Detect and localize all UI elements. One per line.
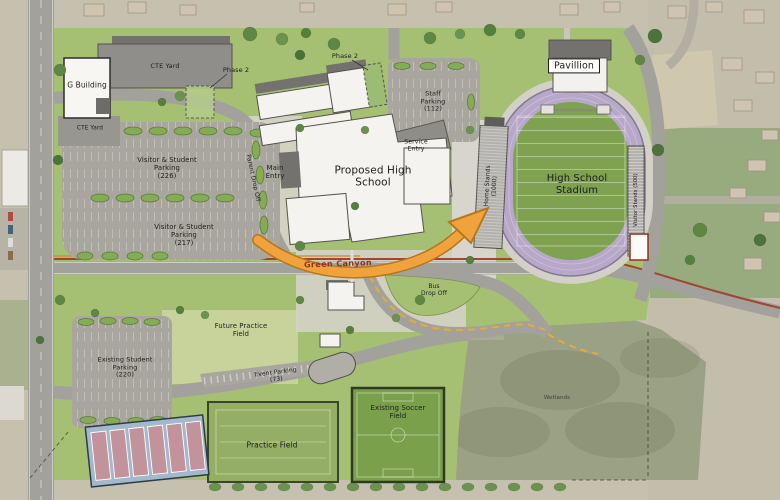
label-visitor-student-parking-south: Visitor & Student Parking (217) <box>154 223 214 247</box>
ticket-booth-marker <box>630 234 648 260</box>
site-plan: G Building CTE Yard CTE Yard Phase 2 Pha… <box>0 0 780 500</box>
label-proposed-high-school: Proposed High School <box>334 165 411 190</box>
phase2-west-pad <box>186 86 214 118</box>
label-existing-student-parking: Existing Student Parking (220) <box>98 357 153 380</box>
label-main-entry: Main Entry <box>265 164 284 181</box>
label-home-stands: Home Stands (1000) <box>483 165 499 207</box>
label-existing-soccer-field: Existing Soccer Field <box>370 404 425 421</box>
label-cte-yard-upper: CTE Yard <box>150 63 179 71</box>
label-future-practice-field: Future Practice Field <box>215 322 267 338</box>
label-g-building: G Building <box>67 82 107 91</box>
site-plan-canvas <box>0 0 780 500</box>
label-visitor-student-parking-north: Visitor & Student Parking (226) <box>137 156 197 180</box>
label-phase2-west: Phase 2 <box>223 67 249 75</box>
label-pavillion: Pavillion <box>548 58 600 73</box>
west-road <box>28 0 54 500</box>
soccer-field-area <box>352 388 444 482</box>
label-service-entry: Service Entry <box>404 139 428 154</box>
label-staff-parking: Staff Parking (112) <box>421 91 446 114</box>
label-cte-yard-lower: CTE Yard <box>77 126 103 133</box>
label-visitor-stands: Visitor Stands (500) <box>633 173 639 226</box>
label-high-school-stadium: High School Stadium <box>547 173 607 197</box>
label-practice-field: Practice Field <box>246 442 297 451</box>
label-bus-drop-off: Bus Drop Off <box>421 283 447 297</box>
label-phase2-east: Phase 2 <box>332 53 358 61</box>
tennis-courts <box>85 415 209 487</box>
label-wetlands: Wetlands <box>544 395 570 401</box>
